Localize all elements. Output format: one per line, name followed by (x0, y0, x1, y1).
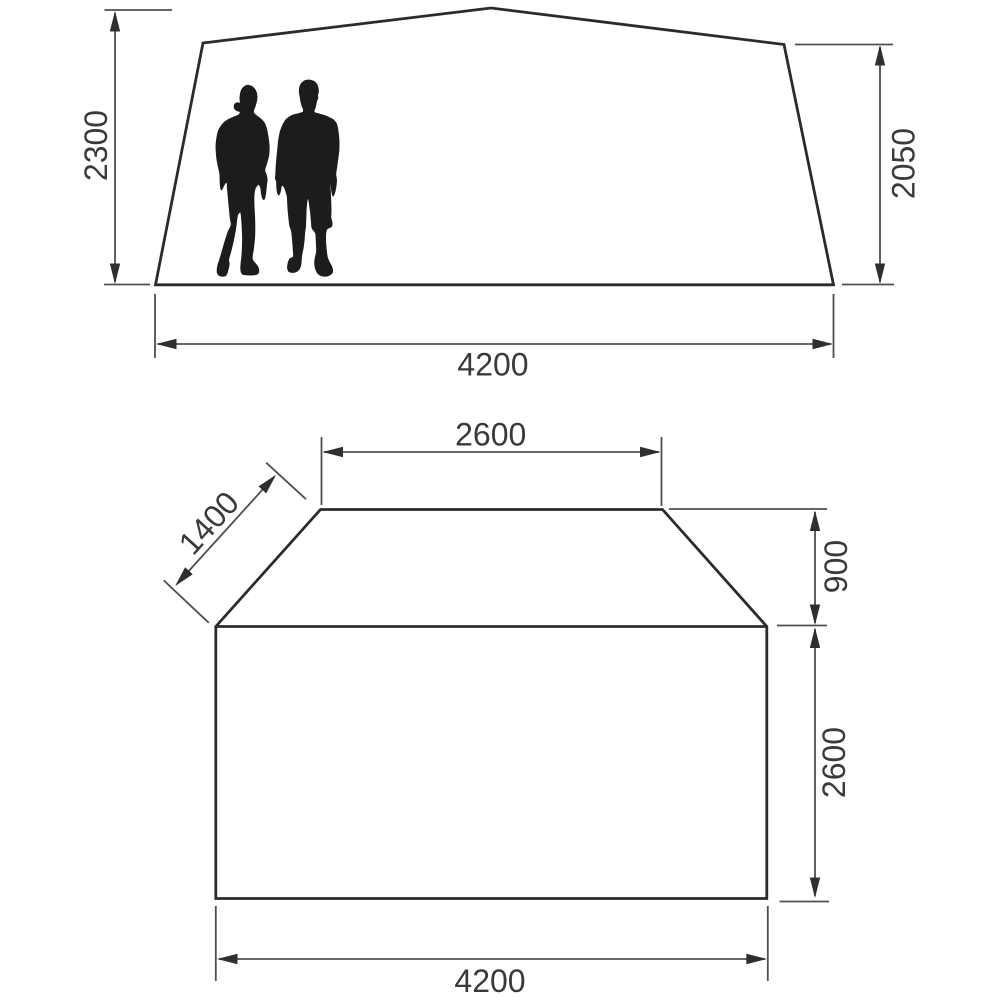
svg-text:2600: 2600 (455, 417, 526, 453)
svg-text:2600: 2600 (816, 727, 852, 798)
svg-text:900: 900 (818, 540, 854, 593)
svg-text:2300: 2300 (78, 110, 114, 181)
svg-text:4200: 4200 (454, 963, 525, 999)
svg-text:4200: 4200 (457, 347, 528, 383)
svg-text:2050: 2050 (886, 128, 922, 199)
